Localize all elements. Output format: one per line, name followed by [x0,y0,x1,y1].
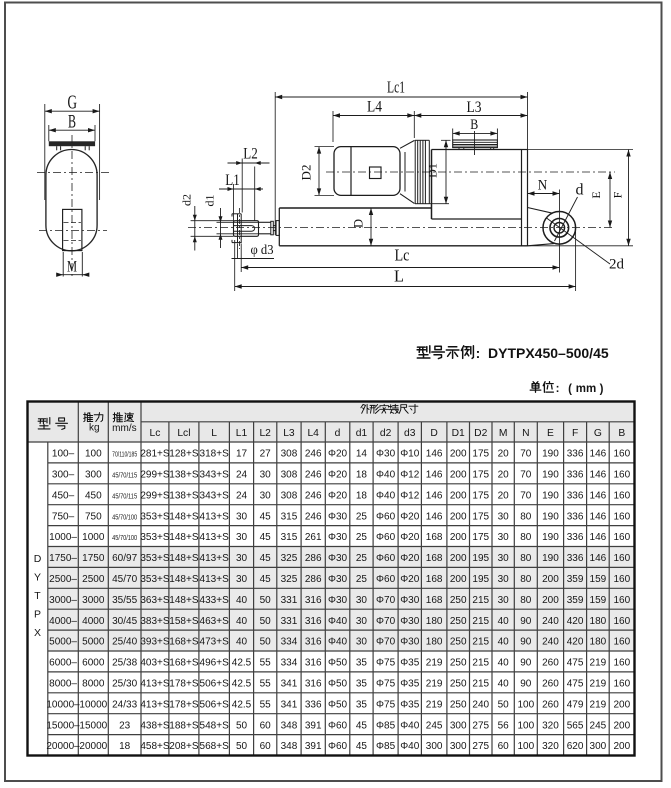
svg-text:438+S: 438+S [140,720,170,731]
svg-text:146: 146 [590,532,607,543]
svg-text:90: 90 [520,637,532,648]
svg-text:300–: 300– [52,469,75,480]
svg-text:168: 168 [426,532,443,543]
svg-text:60: 60 [498,741,510,752]
svg-text:30: 30 [236,532,248,543]
svg-text:25: 25 [356,553,368,564]
svg-text:Φ75: Φ75 [376,699,396,710]
svg-text:246: 246 [305,511,322,522]
svg-text:353+S: 353+S [140,532,170,543]
svg-text:413+S: 413+S [200,532,230,543]
svg-text:50: 50 [260,637,272,648]
svg-text:25: 25 [356,574,368,585]
svg-text:320: 320 [542,720,559,731]
svg-text:316: 316 [305,658,322,669]
svg-text:M: M [67,259,77,276]
svg-text:334: 334 [281,658,298,669]
svg-text:160: 160 [614,553,631,564]
svg-text:D: D [430,428,437,439]
svg-text:159: 159 [590,574,607,585]
svg-text:391: 391 [305,720,322,731]
svg-text:20000: 20000 [79,741,107,752]
svg-text:219: 219 [590,699,607,710]
svg-text:336: 336 [567,469,584,480]
svg-text:4000: 4000 [82,616,105,627]
svg-text:30: 30 [236,511,248,522]
svg-text:246: 246 [305,490,322,501]
svg-text:55: 55 [260,699,272,710]
svg-text:336: 336 [567,532,584,543]
svg-text:300: 300 [426,741,443,752]
svg-text:30: 30 [356,595,368,606]
svg-text:D1: D1 [425,163,439,178]
svg-text:308: 308 [281,490,298,501]
svg-text:Φ20: Φ20 [328,449,348,460]
svg-text:90: 90 [520,616,532,627]
svg-text:Φ60: Φ60 [376,553,396,564]
svg-text:60: 60 [260,720,272,731]
svg-text:473+S: 473+S [200,637,230,648]
svg-text:343+S: 343+S [200,490,230,501]
svg-text:190: 190 [542,490,559,501]
svg-text:336: 336 [567,553,584,564]
svg-text:195: 195 [472,574,489,585]
svg-text:160: 160 [614,490,631,501]
svg-text:250: 250 [450,637,467,648]
svg-text:353+S: 353+S [140,574,170,585]
svg-text:d3: d3 [404,428,416,439]
svg-text:316: 316 [305,678,322,689]
svg-text:318+S: 318+S [200,449,230,460]
svg-text:160: 160 [614,595,631,606]
svg-text:30/45: 30/45 [112,616,137,627]
svg-text:Φ60: Φ60 [328,741,348,752]
svg-text:275: 275 [472,741,489,752]
svg-text:Φ40: Φ40 [400,720,420,731]
svg-text:45: 45 [260,574,272,585]
svg-text:3000: 3000 [82,595,105,606]
svg-text:40: 40 [236,595,248,606]
svg-text:100: 100 [517,720,534,731]
svg-text:316: 316 [305,616,322,627]
svg-text:Φ20: Φ20 [400,553,420,564]
svg-text:336: 336 [567,490,584,501]
svg-text:45/70: 45/70 [112,574,137,585]
svg-text:2500: 2500 [82,574,105,585]
svg-text:479: 479 [567,699,584,710]
svg-text:Φ60: Φ60 [376,511,396,522]
svg-text:20000–: 20000– [46,741,80,752]
svg-text:Φ60: Φ60 [328,720,348,731]
svg-text:260: 260 [542,678,559,689]
svg-text:G: G [67,92,77,114]
svg-text:90: 90 [520,678,532,689]
svg-text:200: 200 [450,490,467,501]
svg-text:Lc: Lc [395,246,410,265]
svg-text:Φ35: Φ35 [400,678,420,689]
svg-text:kg: kg [89,423,100,434]
svg-text:341: 341 [281,678,298,689]
svg-text:1750–: 1750– [49,553,77,564]
svg-text:42.5: 42.5 [232,658,252,669]
svg-text:23: 23 [119,720,131,731]
svg-text:215: 215 [472,678,489,689]
svg-text:8000–: 8000– [49,678,77,689]
svg-text:308: 308 [281,449,298,460]
svg-text:219: 219 [426,678,443,689]
svg-text:341: 341 [281,699,298,710]
svg-text:620: 620 [567,741,584,752]
svg-text:45/70/115: 45/70/115 [112,491,137,500]
svg-text:24: 24 [236,469,248,480]
svg-text:200: 200 [542,595,559,606]
svg-text:160: 160 [614,511,631,522]
svg-text:Φ10: Φ10 [400,449,420,460]
svg-text:158+S: 158+S [169,616,199,627]
svg-text:L2: L2 [259,428,271,439]
svg-text:d2: d2 [380,428,392,439]
svg-text:L4: L4 [307,428,319,439]
svg-text:4000–: 4000– [49,616,77,627]
svg-text:20: 20 [498,449,510,460]
svg-text:353+S: 353+S [140,511,170,522]
svg-text:148+S: 148+S [169,532,199,543]
svg-text:219: 219 [590,678,607,689]
svg-text:): ) [600,384,604,396]
svg-text:Φ30: Φ30 [376,449,396,460]
svg-text:146: 146 [590,449,607,460]
svg-text:160: 160 [614,616,631,627]
svg-text:188+S: 188+S [169,720,199,731]
svg-text:363+S: 363+S [140,595,170,606]
svg-text:45/70/100: 45/70/100 [112,512,137,521]
svg-text:1000: 1000 [82,532,105,543]
svg-text:Φ20: Φ20 [400,511,420,522]
svg-text:Φ30: Φ30 [328,595,348,606]
svg-text:250: 250 [450,616,467,627]
svg-text:30: 30 [498,553,510,564]
svg-text:N: N [522,428,529,439]
svg-text:mm: mm [576,383,596,395]
svg-text:195: 195 [472,553,489,564]
svg-text:55: 55 [260,678,272,689]
svg-text:F: F [610,191,624,198]
svg-text:2500–: 2500– [49,574,77,585]
svg-text:Φ40: Φ40 [376,469,396,480]
svg-text:336: 336 [567,511,584,522]
svg-text:D: D [34,553,42,565]
svg-text:316: 316 [305,637,322,648]
svg-text:L2: L2 [243,146,258,163]
svg-text:Φ50: Φ50 [328,678,348,689]
svg-text:d2: d2 [179,194,193,206]
svg-text:246: 246 [305,469,322,480]
svg-text:200: 200 [450,553,467,564]
svg-text:45/70/115: 45/70/115 [112,470,137,479]
svg-text:138+S: 138+S [169,469,199,480]
svg-text:25/30: 25/30 [112,678,137,689]
svg-text:60/97: 60/97 [112,553,137,564]
svg-text:146: 146 [426,511,443,522]
svg-text:45: 45 [356,720,368,731]
svg-text:383+S: 383+S [140,616,170,627]
svg-text:175: 175 [472,469,489,480]
svg-text:299+S: 299+S [140,469,170,480]
svg-text:G: G [594,428,602,439]
svg-text::: : [476,345,481,361]
svg-text:Φ85: Φ85 [376,741,396,752]
svg-text:φ d3: φ d3 [251,242,274,257]
svg-text:168: 168 [426,595,443,606]
svg-text:d: d [335,428,341,439]
svg-text:35/55: 35/55 [112,595,137,606]
svg-text:413+S: 413+S [140,699,170,710]
svg-text:Φ70: Φ70 [376,616,396,627]
svg-text:70: 70 [520,449,532,460]
svg-text:80: 80 [520,553,532,564]
svg-text:45: 45 [260,553,272,564]
svg-text:Y: Y [34,571,41,583]
svg-text:146: 146 [426,469,443,480]
svg-text:245: 245 [426,720,443,731]
svg-text:24/33: 24/33 [112,699,137,710]
svg-text:Φ30: Φ30 [328,511,348,522]
svg-text:190: 190 [542,449,559,460]
svg-text:35: 35 [356,699,368,710]
svg-text:L3: L3 [467,99,482,116]
svg-text:6000–: 6000– [49,658,77,669]
svg-text:L1: L1 [225,172,240,189]
svg-text:B: B [618,428,625,439]
svg-text:420: 420 [567,637,584,648]
svg-text:548+S: 548+S [200,720,230,731]
svg-text:353+S: 353+S [140,553,170,564]
svg-text:Φ70: Φ70 [376,595,396,606]
svg-text:40: 40 [236,637,248,648]
svg-text:391: 391 [305,741,322,752]
svg-text:250: 250 [450,678,467,689]
svg-text:80: 80 [520,595,532,606]
svg-text:70/110/185: 70/110/185 [112,450,137,459]
svg-text:148+S: 148+S [169,595,199,606]
svg-text:Lc1: Lc1 [387,78,405,97]
svg-text:506+S: 506+S [200,699,230,710]
svg-text:42.5: 42.5 [232,699,252,710]
svg-text:359: 359 [567,574,584,585]
svg-text:L3: L3 [283,428,295,439]
svg-text:281+S: 281+S [140,449,170,460]
svg-text:20: 20 [498,490,510,501]
svg-text:L: L [211,428,217,439]
svg-text:146: 146 [590,469,607,480]
svg-text:50: 50 [236,720,248,731]
svg-text:30: 30 [498,511,510,522]
svg-text:d: d [576,182,584,199]
svg-text:250: 250 [450,699,467,710]
svg-text:250: 250 [450,658,467,669]
svg-text:80: 80 [520,532,532,543]
svg-text:3000–: 3000– [49,595,77,606]
svg-text:178+S: 178+S [169,699,199,710]
svg-text:80: 80 [520,574,532,585]
svg-text:40: 40 [498,637,510,648]
svg-text:Lcl: Lcl [177,428,190,439]
svg-text:DYTPX450–500/45: DYTPX450–500/45 [488,345,609,361]
svg-text:315: 315 [281,511,298,522]
svg-text:178+S: 178+S [169,678,199,689]
svg-text:D2: D2 [298,165,313,181]
svg-text:413+S: 413+S [200,574,230,585]
svg-text:420: 420 [567,616,584,627]
svg-text:750–: 750– [52,511,75,522]
svg-text:200: 200 [614,720,631,731]
svg-text:175: 175 [472,511,489,522]
svg-text:168: 168 [426,574,443,585]
svg-text:B: B [470,117,478,133]
svg-text:286: 286 [305,574,322,585]
svg-text:8000: 8000 [82,678,105,689]
svg-text:215: 215 [472,595,489,606]
svg-text:d1: d1 [356,428,368,439]
svg-text:148+S: 148+S [169,553,199,564]
svg-text:Φ60: Φ60 [376,532,396,543]
svg-text:70: 70 [520,469,532,480]
svg-text:18: 18 [356,469,368,480]
svg-text:331: 331 [281,595,298,606]
svg-text:245: 245 [590,720,607,731]
svg-text:160: 160 [614,637,631,648]
svg-text::: : [556,383,560,395]
svg-text:148+S: 148+S [169,574,199,585]
svg-text:148+S: 148+S [169,511,199,522]
svg-text:Φ12: Φ12 [400,469,420,480]
svg-text:15000–: 15000– [46,720,80,731]
svg-text:300: 300 [590,741,607,752]
svg-text:Φ30: Φ30 [400,637,420,648]
svg-text:Φ85: Φ85 [376,720,396,731]
svg-text:240: 240 [472,699,489,710]
svg-text:146: 146 [426,449,443,460]
svg-text:E: E [589,191,603,198]
svg-text:275: 275 [472,720,489,731]
svg-text:Φ40: Φ40 [400,741,420,752]
svg-text:Φ60: Φ60 [376,574,396,585]
svg-text:260: 260 [542,658,559,669]
svg-text:Φ30: Φ30 [328,553,348,564]
svg-text:496+S: 496+S [200,658,230,669]
svg-text:160: 160 [614,678,631,689]
svg-text:200: 200 [450,449,467,460]
svg-text:146: 146 [426,490,443,501]
svg-text:35: 35 [356,678,368,689]
svg-text:240: 240 [542,616,559,627]
svg-text:219: 219 [426,699,443,710]
svg-text:15000: 15000 [79,720,107,731]
svg-text:2d: 2d [609,257,625,273]
svg-text:168+S: 168+S [169,637,199,648]
svg-text:45/70/100: 45/70/100 [112,533,137,542]
svg-text:55: 55 [260,658,272,669]
svg-text:168+S: 168+S [169,658,199,669]
svg-text:Φ20: Φ20 [328,469,348,480]
svg-text:Φ40: Φ40 [328,616,348,627]
svg-text:E: E [547,428,554,439]
svg-text:334: 334 [281,637,298,648]
svg-text:100–: 100– [52,449,75,460]
svg-text:50: 50 [260,616,272,627]
svg-text:100: 100 [517,741,534,752]
svg-text:159: 159 [590,595,607,606]
svg-text:40: 40 [236,616,248,627]
svg-text:Φ50: Φ50 [328,699,348,710]
svg-text:200: 200 [614,699,631,710]
svg-text:Φ35: Φ35 [400,658,420,669]
svg-text:565: 565 [567,720,584,731]
svg-text:Φ70: Φ70 [376,637,396,648]
svg-text:Φ40: Φ40 [376,490,396,501]
svg-text:100: 100 [85,449,102,460]
svg-text:D: D [352,219,366,228]
svg-text:Φ40: Φ40 [328,637,348,648]
svg-text:180: 180 [590,616,607,627]
svg-text:336: 336 [567,449,584,460]
svg-text:10000–: 10000– [46,699,80,710]
svg-text:250: 250 [450,595,467,606]
svg-text:261: 261 [305,532,322,543]
svg-text:200: 200 [450,511,467,522]
svg-text:450: 450 [85,490,102,501]
svg-text:190: 190 [542,553,559,564]
svg-text:215: 215 [472,616,489,627]
svg-text:316: 316 [305,595,322,606]
svg-text:128+S: 128+S [169,449,199,460]
svg-text:475: 475 [567,678,584,689]
svg-text:25: 25 [356,532,368,543]
svg-text:160: 160 [614,449,631,460]
svg-text:30: 30 [498,595,510,606]
svg-text:315: 315 [281,532,298,543]
svg-text:100: 100 [517,699,534,710]
svg-text:F: F [572,428,578,439]
svg-text:215: 215 [472,658,489,669]
svg-text:X: X [34,627,41,639]
svg-text:403+S: 403+S [140,658,170,669]
svg-text:18: 18 [356,490,368,501]
svg-text:413+S: 413+S [200,511,230,522]
svg-text:Φ35: Φ35 [400,699,420,710]
svg-text:P: P [34,608,41,620]
svg-text:219: 219 [426,658,443,669]
svg-text:45: 45 [356,741,368,752]
svg-text:336: 336 [305,699,322,710]
svg-text:25/38: 25/38 [112,658,137,669]
svg-text:56: 56 [498,720,510,731]
svg-text:300: 300 [450,741,467,752]
svg-text:Φ75: Φ75 [376,678,396,689]
svg-text:180: 180 [426,616,443,627]
svg-text:40: 40 [498,616,510,627]
svg-text:146: 146 [590,553,607,564]
svg-text:168: 168 [426,553,443,564]
svg-text:M: M [499,428,508,439]
svg-text:42.5: 42.5 [232,678,252,689]
svg-text:80: 80 [520,511,532,522]
svg-text:160: 160 [614,574,631,585]
svg-text:200: 200 [614,741,631,752]
svg-text:60: 60 [260,741,272,752]
svg-text:300: 300 [450,720,467,731]
svg-text:308: 308 [281,469,298,480]
